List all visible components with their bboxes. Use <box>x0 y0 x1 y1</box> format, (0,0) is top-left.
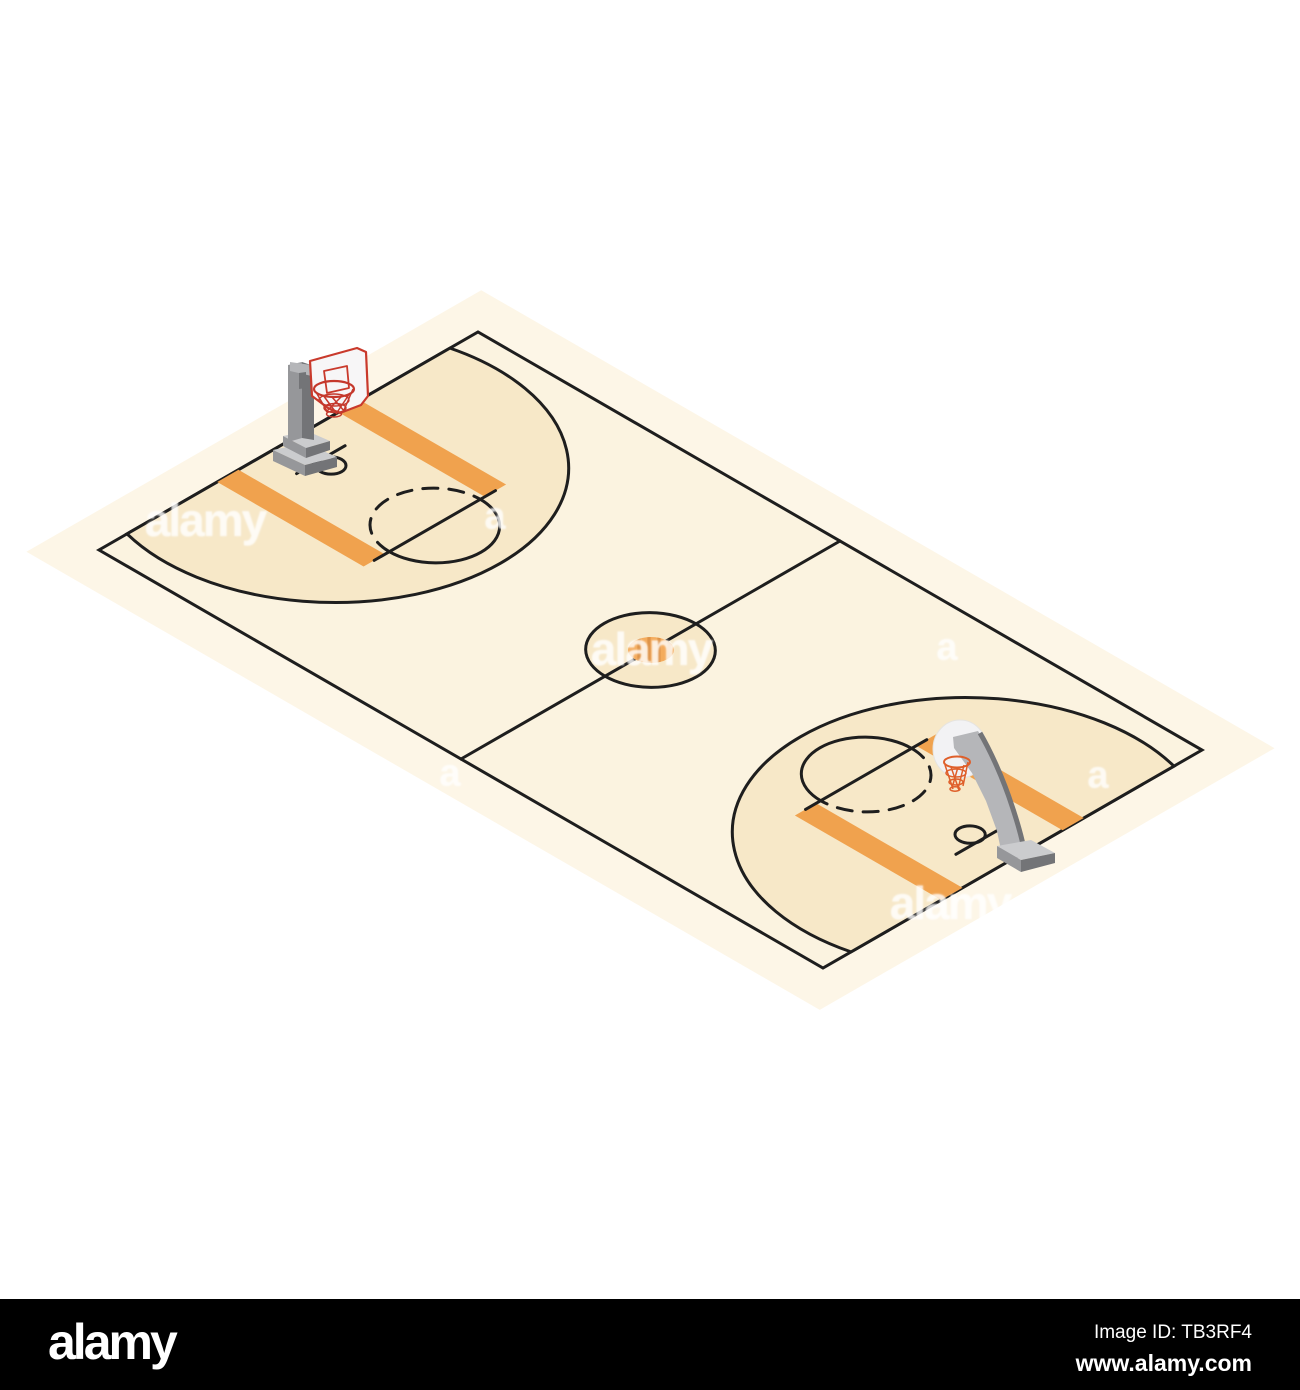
alamy-footer-bar: alamy Image ID: TB3RF4 www.alamy.com <box>0 1299 1300 1390</box>
image-id-label: Image ID: TB3RF4 <box>1076 1322 1252 1344</box>
alamy-logo: alamy <box>48 1317 175 1373</box>
alamy-letter-watermark: a <box>484 496 505 539</box>
alamy-letter-watermark: a <box>936 627 957 670</box>
alamy-letter-watermark: a <box>1087 755 1108 798</box>
alamy-watermark: alamy <box>890 876 1010 930</box>
alamy-letter-watermark: a <box>439 753 460 796</box>
basketball-court-illustration <box>0 0 1300 1390</box>
alamy-watermark: alamy <box>145 493 265 547</box>
image-info: Image ID: TB3RF4 www.alamy.com <box>1076 1312 1252 1377</box>
post-slot <box>299 372 306 389</box>
stock-image-preview: alamy alamy alamy a a a a alamy Image ID… <box>0 0 1300 1390</box>
alamy-url: www.alamy.com <box>1076 1350 1252 1377</box>
alamy-watermark: alamy <box>591 622 711 676</box>
